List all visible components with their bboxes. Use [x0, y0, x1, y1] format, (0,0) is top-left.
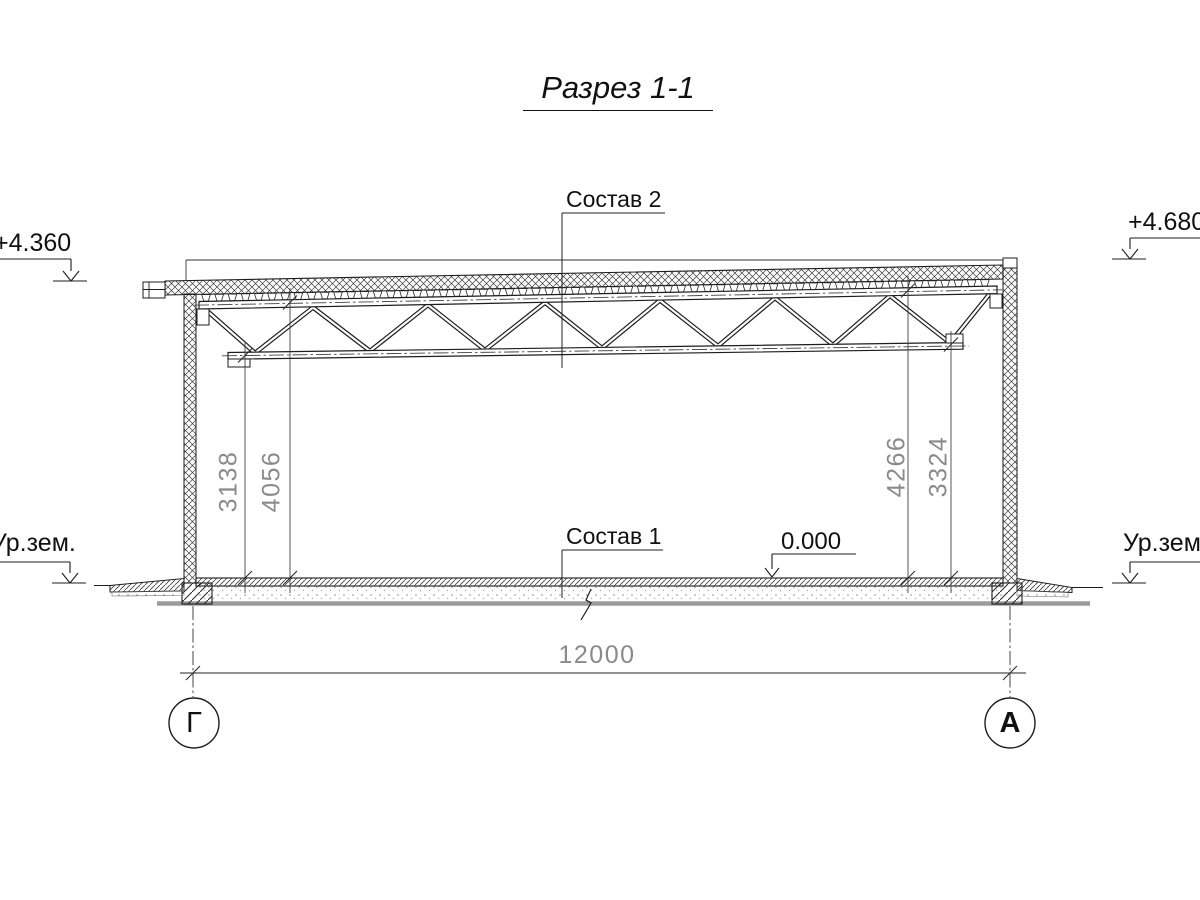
dim-floor-to-truss-top-right: 4266	[883, 407, 912, 527]
drawing-title: Разрез 1-1	[523, 70, 713, 111]
elevation-floor-zero: 0.000	[781, 528, 841, 556]
roof-truss	[194, 286, 1002, 367]
marker-zero-level	[765, 554, 856, 577]
elevation-roof-right: +4.680	[1128, 208, 1200, 237]
marker-ground-left	[0, 562, 86, 583]
wall-left	[184, 294, 196, 583]
axis-bubble-letter-right: А	[992, 705, 1028, 741]
wall-right	[1003, 258, 1017, 583]
dim-floor-to-truss-bottom-left: 3138	[215, 422, 244, 542]
axis-bubble-letter-left: Г	[176, 705, 212, 741]
ground-level-left: Ур.зем.	[0, 529, 76, 558]
apron-left	[94, 579, 184, 597]
dim-floor-to-truss-top-left: 4056	[258, 422, 287, 542]
floor-composition-callout: Состав 1	[566, 523, 661, 550]
dim-span: 12000	[537, 641, 657, 670]
apron-right	[1017, 579, 1103, 598]
section-drawing-canvas	[0, 0, 1200, 900]
section-drawing-sheet: Разрез 1-1 Состав 2 Состав 1 +4.360 +4.6…	[0, 0, 1200, 900]
marker-roof-right	[1112, 238, 1200, 259]
roof-composition-callout: Состав 2	[566, 186, 661, 213]
marker-ground-right	[1112, 562, 1200, 583]
floor-slab	[157, 578, 1090, 604]
dim-floor-to-truss-bottom-right: 3324	[925, 407, 954, 527]
ground-level-right: Ур.зем.	[1123, 529, 1200, 558]
marker-roof-left	[0, 259, 87, 281]
elevation-roof-left: +4.360	[0, 229, 71, 258]
eaves-detail	[143, 282, 165, 298]
